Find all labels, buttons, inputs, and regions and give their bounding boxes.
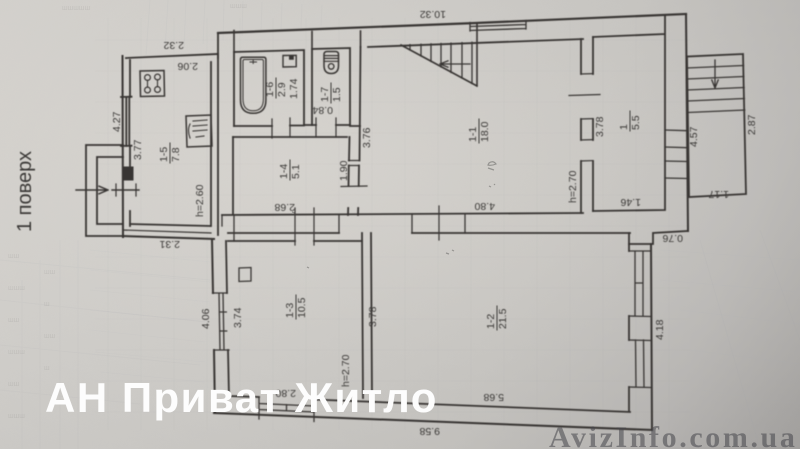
svg-text:4.27: 4.27 (111, 111, 123, 132)
svg-text:1-2: 1-2 (485, 314, 497, 329)
svg-text:3.78: 3.78 (367, 306, 379, 327)
svg-text:1: 1 (618, 124, 630, 130)
svg-text:0.76: 0.76 (662, 232, 683, 244)
svg-text:2.31: 2.31 (159, 238, 180, 250)
svg-text:1.90: 1.90 (338, 160, 350, 181)
svg-text:2.9: 2.9 (276, 82, 288, 97)
svg-text:21.5: 21.5 (497, 308, 509, 329)
svg-text:1.17: 1.17 (708, 188, 729, 200)
svg-text:3.78: 3.78 (594, 116, 606, 137)
svg-text:2.32: 2.32 (163, 39, 184, 51)
svg-text:h=2.60: h=2.60 (194, 184, 206, 217)
svg-text:4.80: 4.80 (474, 200, 495, 212)
svg-text:1.46: 1.46 (620, 196, 641, 208)
svg-text:3.74: 3.74 (232, 307, 244, 328)
svg-text:5.1: 5.1 (290, 164, 302, 179)
svg-text:3.77: 3.77 (132, 139, 144, 160)
svg-text:4.57: 4.57 (688, 126, 700, 147)
svg-text:1 поверх: 1 поверх (14, 151, 36, 232)
svg-text:2.87: 2.87 (746, 114, 758, 135)
svg-text:1.74: 1.74 (288, 78, 300, 99)
svg-text:3.76: 3.76 (361, 127, 373, 148)
svg-text:5.5: 5.5 (630, 115, 642, 130)
svg-text:1-1: 1-1 (467, 127, 479, 142)
svg-text:1-7: 1-7 (319, 87, 331, 102)
svg-text:9.58: 9.58 (419, 425, 440, 437)
svg-text:10.5: 10.5 (296, 297, 308, 318)
svg-text:4.06: 4.06 (200, 308, 212, 329)
svg-text:18.0: 18.0 (479, 121, 491, 142)
svg-text:1-3: 1-3 (284, 303, 296, 318)
svg-text:2.68: 2.68 (274, 201, 295, 213)
svg-text:h=2.70: h=2.70 (567, 170, 579, 203)
svg-text:1-6: 1-6 (264, 82, 276, 97)
svg-text:1-5: 1-5 (158, 147, 170, 162)
svg-text:5.68: 5.68 (483, 391, 504, 403)
svg-text:7.8: 7.8 (170, 147, 182, 162)
svg-text:1-4: 1-4 (278, 164, 290, 179)
svg-text:10.32: 10.32 (420, 8, 446, 20)
svg-text:0.84: 0.84 (312, 104, 333, 116)
svg-text:2.06: 2.06 (177, 60, 198, 72)
svg-text:4.18: 4.18 (654, 319, 666, 340)
svg-text:1.5: 1.5 (331, 87, 343, 102)
